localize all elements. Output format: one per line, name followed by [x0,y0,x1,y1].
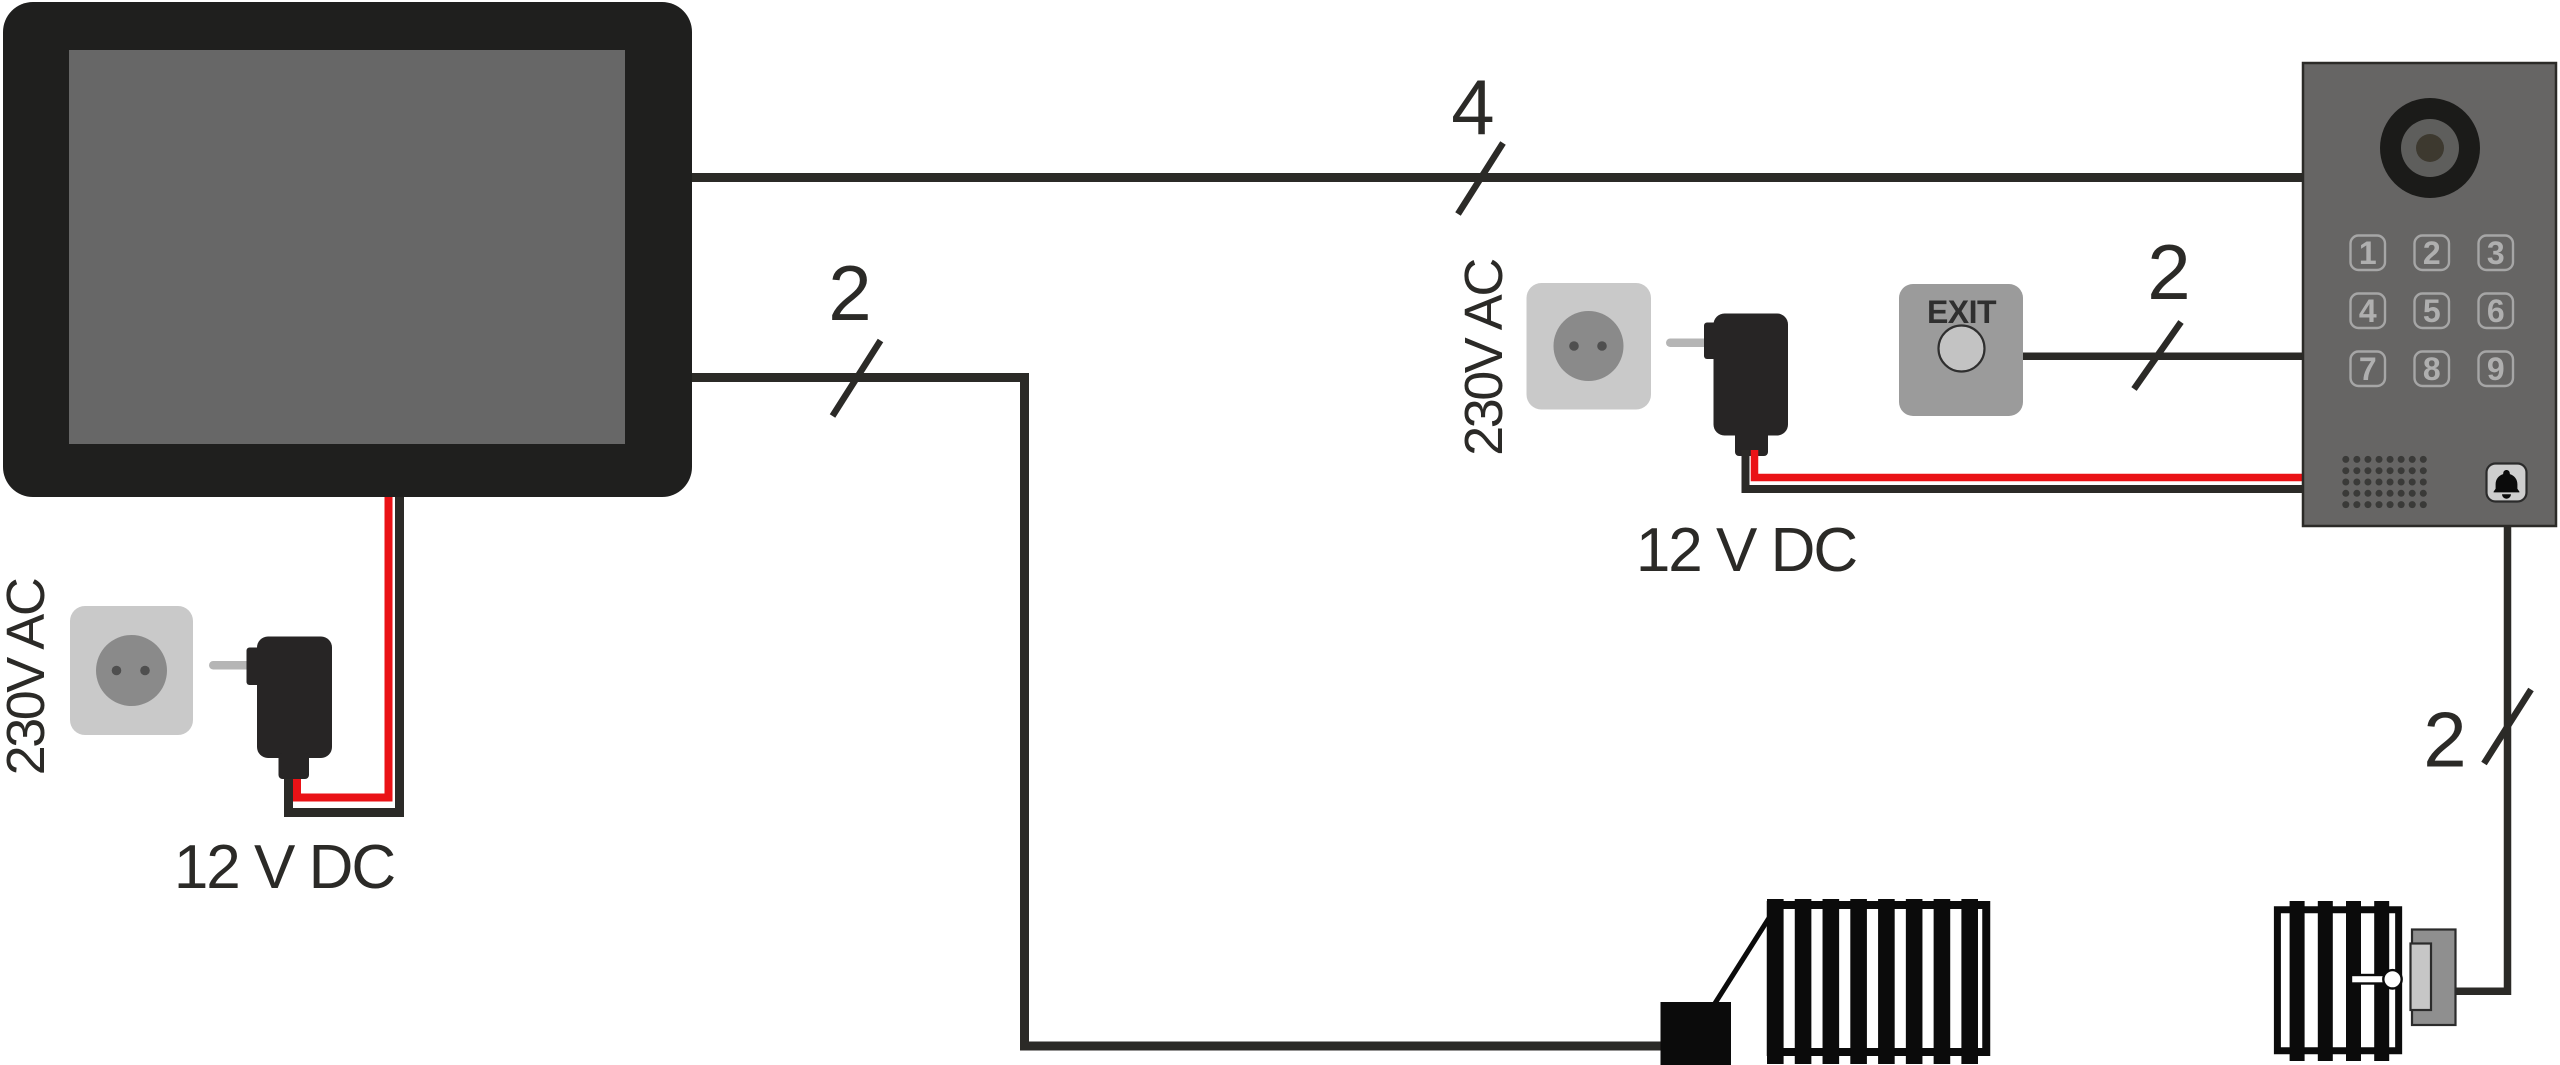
svg-text:3: 3 [2487,235,2505,271]
svg-text:7: 7 [2359,351,2377,387]
svg-text:6: 6 [2487,293,2505,329]
svg-text:2: 2 [2423,696,2466,784]
svg-text:2: 2 [2423,235,2441,271]
svg-text:1: 1 [2359,235,2377,271]
svg-text:5: 5 [2423,293,2441,329]
svg-text:12 V DC: 12 V DC [1636,516,1857,585]
svg-text:9: 9 [2487,351,2505,387]
svg-text:8: 8 [2423,351,2441,387]
svg-text:2: 2 [828,249,871,337]
svg-text:12 V DC: 12 V DC [174,833,395,902]
svg-text:230V AC: 230V AC [0,579,56,775]
svg-text:4: 4 [1451,63,1494,151]
svg-text:230V AC: 230V AC [1454,260,1514,456]
svg-text:4: 4 [2359,293,2377,329]
svg-text:2: 2 [2147,228,2190,316]
